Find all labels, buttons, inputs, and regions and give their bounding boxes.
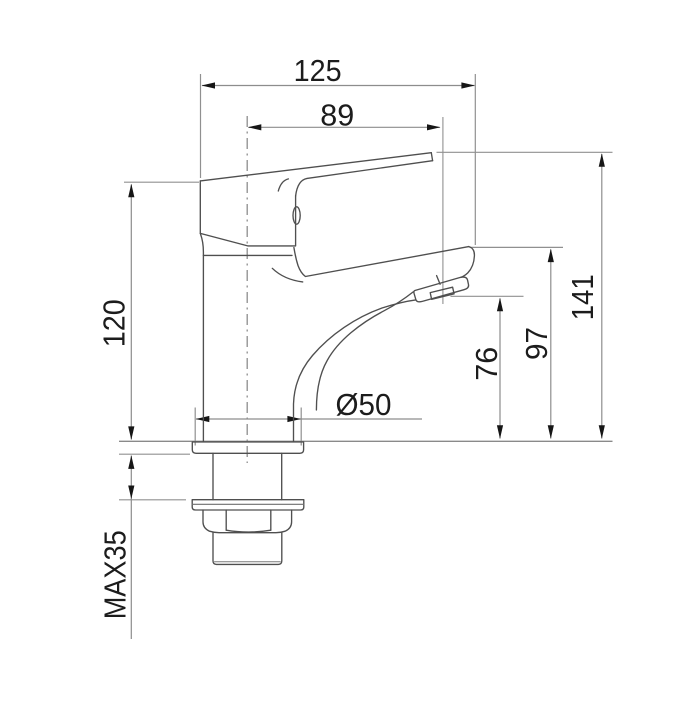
svg-text:120: 120: [98, 299, 132, 347]
svg-text:97: 97: [520, 327, 554, 360]
svg-text:MAX35: MAX35: [98, 530, 132, 619]
svg-text:89: 89: [320, 99, 354, 133]
svg-text:141: 141: [566, 274, 600, 320]
svg-text:125: 125: [294, 54, 342, 88]
svg-text:Ø50: Ø50: [336, 388, 392, 422]
svg-text:76: 76: [470, 347, 504, 381]
